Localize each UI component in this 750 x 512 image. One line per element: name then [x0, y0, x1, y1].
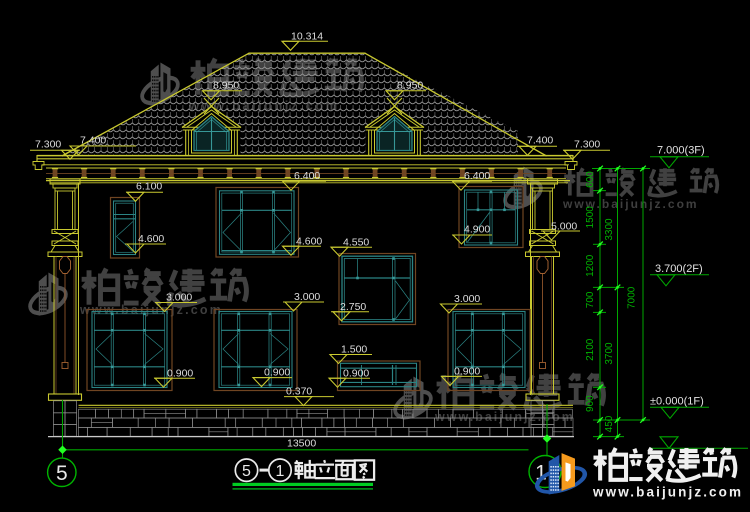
- svg-text:600: 600: [585, 171, 596, 188]
- svg-text:3.000: 3.000: [166, 291, 192, 303]
- svg-text:3700: 3700: [604, 342, 615, 365]
- svg-text:4.600: 4.600: [138, 233, 164, 245]
- svg-text:3.700(2F): 3.700(2F): [655, 263, 703, 275]
- svg-text:3.000: 3.000: [294, 291, 320, 303]
- svg-text:4.900: 4.900: [464, 224, 490, 236]
- svg-text:1.500: 1.500: [341, 344, 367, 356]
- svg-text:±0.000(1F): ±0.000(1F): [650, 396, 704, 408]
- svg-text:www.baijunjz.com: www.baijunjz.com: [562, 197, 699, 211]
- svg-text:6.100: 6.100: [136, 181, 162, 193]
- svg-text:0.370: 0.370: [286, 385, 312, 397]
- svg-text:0.900: 0.900: [454, 365, 480, 377]
- svg-text:7000: 7000: [627, 286, 638, 309]
- svg-text:4.600: 4.600: [296, 235, 322, 247]
- svg-text:3300: 3300: [604, 218, 615, 241]
- svg-text:7.300: 7.300: [574, 138, 600, 150]
- svg-text:2.750: 2.750: [340, 301, 366, 313]
- svg-text:3.000: 3.000: [454, 293, 480, 305]
- svg-text:6.400: 6.400: [464, 170, 490, 182]
- svg-text:7.300: 7.300: [35, 139, 61, 151]
- svg-text:2100: 2100: [585, 338, 596, 361]
- svg-text:7.400: 7.400: [80, 135, 106, 147]
- svg-text:7.000(3F): 7.000(3F): [657, 145, 705, 157]
- svg-text:700: 700: [585, 291, 596, 308]
- svg-text:5: 5: [56, 462, 68, 485]
- svg-text:8.950: 8.950: [213, 80, 239, 92]
- svg-text:5: 5: [242, 463, 251, 480]
- svg-text:0.900: 0.900: [167, 367, 193, 379]
- svg-text:8.950: 8.950: [397, 80, 423, 92]
- svg-text:0.900: 0.900: [264, 367, 290, 379]
- svg-text:1200: 1200: [585, 254, 596, 277]
- svg-text:6.400: 6.400: [294, 170, 320, 182]
- svg-text:10.314: 10.314: [291, 31, 323, 43]
- svg-text:4.550: 4.550: [343, 236, 369, 248]
- svg-text:1500: 1500: [585, 206, 596, 229]
- svg-text:450: 450: [604, 415, 615, 432]
- svg-text:7.400: 7.400: [527, 135, 553, 147]
- svg-text:13500: 13500: [287, 438, 316, 450]
- svg-text:900: 900: [585, 395, 596, 412]
- svg-text:1: 1: [276, 463, 285, 480]
- svg-text:0.900: 0.900: [343, 367, 369, 379]
- svg-text:www.baijunjz.com: www.baijunjz.com: [592, 485, 743, 500]
